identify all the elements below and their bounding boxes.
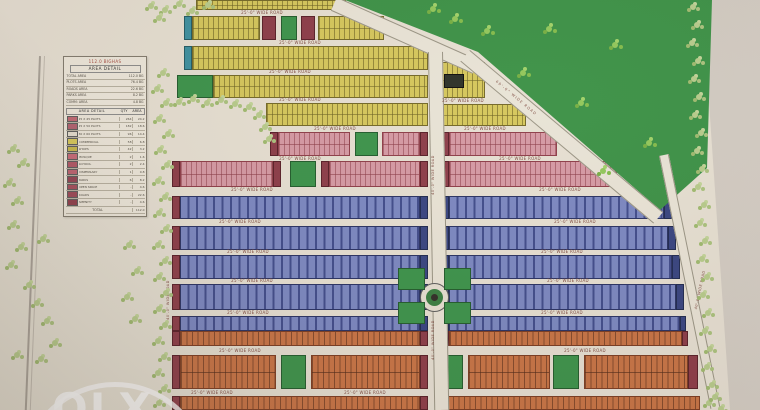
road-label: 25'-0" WIDE ROAD: [269, 70, 311, 74]
tree-cluster: [691, 76, 697, 82]
plot-row-segment: [301, 16, 315, 40]
plot-row-segment: [449, 316, 680, 331]
park-block: [398, 268, 425, 290]
legend-row: SHOPS423.2: [66, 146, 145, 154]
park-block: [398, 302, 425, 324]
tree-cluster: [134, 268, 140, 274]
road-label: 25'-0" WIDE ROAD: [227, 311, 269, 315]
tree-cluster: [6, 180, 12, 186]
plot-row-segment: [177, 75, 213, 98]
plot-row-segment: [420, 196, 428, 219]
road-label: 25'-0" WIDE ROAD: [442, 99, 484, 103]
tree-cluster: [704, 274, 710, 280]
road-label: 25'-0" WIDE ROAD: [464, 127, 506, 131]
plot-row-segment: [172, 355, 180, 389]
legend-row: AMENITY-4.6: [66, 199, 145, 207]
plot-row-segment: [192, 16, 260, 40]
legend-info-row: COMM: AREA4.8 BG: [66, 100, 145, 107]
plot-row-segment: [180, 255, 420, 279]
legend-swatch: [67, 131, 78, 138]
plot-row-segment: [420, 355, 428, 389]
tree-cluster: [266, 136, 272, 142]
plot-row-segment: [449, 226, 668, 250]
vertical-road-label: 40'-0" WIDE ROAD: [166, 280, 170, 320]
tree-cluster: [452, 16, 458, 22]
legend-row: MOSQUE21.6: [66, 153, 145, 161]
area-detail-legend: 112.0 BIGHAS AREA DETAIL TOTAL AREA112.0…: [63, 56, 147, 217]
tree-cluster: [161, 354, 167, 360]
tree-cluster: [246, 104, 252, 110]
plot-row-segment: [172, 196, 180, 219]
tree-cluster: [189, 8, 195, 14]
plot-row-segment: [172, 226, 180, 250]
tree-cluster: [709, 382, 715, 388]
plot-row-segment: [266, 103, 428, 126]
vertical-road-label: 40'-0" WIDE ROAD: [431, 320, 435, 360]
tree-cluster: [699, 166, 705, 172]
plot-row-segment: [441, 396, 700, 410]
tree-cluster: [702, 328, 708, 334]
legend-row: PARKS68.2: [66, 176, 145, 184]
tree-cluster: [694, 148, 700, 154]
road-label: 25'-0" WIDE ROAD: [547, 279, 589, 283]
tree-cluster: [162, 7, 168, 13]
plot-row-segment: [180, 355, 276, 389]
tree-cluster: [52, 340, 58, 346]
road-label: 25'-0" WIDE ROAD: [499, 157, 541, 161]
tree-cluster: [704, 364, 710, 370]
plot-row-segment: [672, 255, 680, 279]
legend-swatch: [67, 184, 78, 191]
tree-cluster: [163, 100, 169, 106]
tree-cluster: [8, 262, 14, 268]
tree-cluster: [162, 322, 168, 328]
tree-cluster: [689, 40, 695, 46]
tree-cluster: [262, 124, 268, 130]
plot-row-segment: [172, 161, 180, 187]
tree-cluster: [10, 222, 16, 228]
olx-watermark-text: OLX: [52, 384, 153, 410]
tree-cluster: [218, 97, 224, 103]
tree-cluster: [176, 1, 182, 7]
plot-row-segment: [468, 355, 550, 389]
tree-cluster: [205, 2, 211, 8]
tree-cluster: [165, 131, 171, 137]
legend-row: DISPENSARY10.8: [66, 169, 145, 177]
tree-cluster: [520, 70, 526, 76]
tree-cluster: [256, 112, 262, 118]
tree-cluster: [20, 160, 26, 166]
road-label: 25'-0" WIDE ROAD: [231, 188, 273, 192]
plot-row-segment: [441, 104, 526, 126]
tree-cluster: [706, 400, 712, 406]
tree-cluster: [155, 338, 161, 344]
plot-row-segment: [213, 75, 428, 98]
plot-row-segment: [180, 331, 420, 346]
legend-swatch: [67, 176, 78, 183]
legend-info-row: PLOTS AREA76.4 BG: [66, 80, 145, 87]
road-label: 25'-0" WIDE ROAD: [564, 349, 606, 353]
plot-row-segment: [184, 46, 192, 70]
plot-row-segment: [180, 161, 273, 187]
park-block: [444, 302, 471, 324]
legend-row: ROADS-22.6: [66, 191, 145, 199]
plot-row-segment: [172, 255, 180, 279]
plot-row-segment: [184, 16, 192, 40]
legend-swatch: [67, 116, 78, 123]
plot-row-segment: [172, 316, 180, 331]
tree-cluster: [698, 130, 704, 136]
road-label: 25'-0" WIDE ROAD: [279, 41, 321, 45]
tree-cluster: [699, 256, 705, 262]
tree-cluster: [712, 394, 718, 400]
legend-swatch: [67, 123, 78, 130]
plot-row-segment: [382, 132, 420, 156]
legend-color-rows: 25 X 45 PLOTS26424.225 X 50 PLOTS18218.6…: [66, 115, 145, 214]
tree-cluster: [10, 146, 16, 152]
tree-cluster: [38, 356, 44, 362]
tree-cluster: [696, 94, 702, 100]
tree-cluster: [156, 274, 162, 280]
tree-cluster: [156, 15, 162, 21]
road-label: 25'-0" WIDE ROAD: [314, 127, 356, 131]
vertical-road-label: 40'-0" WIDE ROAD: [431, 155, 435, 195]
tree-cluster: [701, 202, 707, 208]
tree-cluster: [695, 58, 701, 64]
tree-cluster: [162, 194, 168, 200]
plot-row-segment: [180, 196, 420, 219]
plot-row-segment: [553, 355, 579, 389]
tree-cluster: [484, 28, 490, 34]
plot-row-segment: [270, 132, 278, 156]
tree-cluster: [190, 96, 196, 102]
legend-row: TOTAL112.0: [66, 207, 145, 215]
legend-swatch: [67, 199, 78, 206]
legend-swatch: [67, 161, 78, 168]
legend-swatch: [67, 191, 78, 198]
plot-row-segment: [290, 161, 316, 187]
tree-cluster: [204, 100, 210, 106]
tree-cluster: [18, 244, 24, 250]
tree-cluster: [156, 116, 162, 122]
legend-info-row: PARKS AREA8.2 BG: [66, 93, 145, 100]
legend-row: 25 X 45 PLOTS26424.2: [66, 115, 145, 123]
tree-cluster: [705, 310, 711, 316]
tree-cluster: [34, 300, 40, 306]
tree-cluster: [232, 101, 238, 107]
tree-cluster: [155, 370, 161, 376]
plot-row-segment: [355, 132, 378, 156]
tree-cluster: [157, 147, 163, 153]
legend-info-row: ROADS AREA22.6 BG: [66, 87, 145, 94]
road-label: 25'-0" WIDE ROAD: [227, 250, 269, 254]
plot-row-segment: [172, 284, 180, 310]
plot-row-segment: [682, 331, 688, 346]
plot-row-segment: [584, 355, 688, 389]
plot-row-segment: [180, 226, 420, 250]
road-label: 25'-0" WIDE ROAD: [241, 11, 283, 15]
plot-row-segment: [420, 331, 428, 346]
legend-info-rows: TOTAL AREA112.0 BGPLOTS AREA76.4 BGROADS…: [66, 74, 145, 107]
plot-row-segment: [180, 396, 420, 410]
tree-cluster: [148, 3, 154, 9]
roundabout-center: [431, 294, 438, 301]
legend-row: SCHOOL22.4: [66, 161, 145, 169]
plot-row-segment: [278, 132, 350, 156]
photo-of-plot-map: 60'-0" WIDE ROAD 25'-0" WIDE ROAD25'-0" …: [0, 0, 760, 410]
road-label: 25'-0" WIDE ROAD: [231, 279, 273, 283]
tree-cluster: [718, 406, 724, 410]
tree-cluster: [707, 346, 713, 352]
tree-cluster: [700, 292, 706, 298]
legend-swatch: [67, 138, 78, 145]
road-label: 25'-0" WIDE ROAD: [539, 188, 581, 192]
tree-cluster: [692, 112, 698, 118]
tree-cluster: [578, 100, 584, 106]
road-label: 25'-0" WIDE ROAD: [279, 157, 321, 161]
legend-swatch: [67, 146, 78, 153]
plot-row-segment: [676, 284, 684, 310]
tree-cluster: [162, 258, 168, 264]
tree-cluster: [694, 22, 700, 28]
tree-cluster: [124, 294, 130, 300]
tree-cluster: [132, 316, 138, 322]
plot-row-segment: [449, 132, 557, 156]
plot-row-segment: [273, 161, 281, 187]
tree-cluster: [646, 140, 652, 146]
road-label: 25'-0" WIDE ROAD: [279, 98, 321, 102]
tree-cluster: [612, 42, 618, 48]
legend-row: COMMERCIAL586.8: [66, 138, 145, 146]
plot-row-segment: [281, 16, 297, 40]
plot-row-segment: [192, 46, 428, 70]
plot-row-segment: [196, 0, 346, 10]
tree-cluster: [690, 4, 696, 10]
plot-row-segment: [688, 355, 698, 389]
tree-cluster: [44, 318, 50, 324]
legend-swatch: [67, 153, 78, 160]
plot-row-segment: [449, 331, 682, 346]
plot-row-segment: [420, 226, 428, 250]
legend-table-header: AREA DETAILQTYAREA: [66, 108, 145, 116]
legend-row: 30 X 60 PLOTS9614.4: [66, 131, 145, 139]
tree-cluster: [155, 178, 161, 184]
tree-cluster: [154, 86, 160, 92]
plot-row-segment: [420, 132, 428, 156]
tree-cluster: [702, 238, 708, 244]
tree-cluster: [163, 226, 169, 232]
plot-row-segment: [180, 284, 420, 310]
plot-row-segment: [321, 161, 329, 187]
tree-cluster: [161, 386, 167, 392]
plot-row-segment: [420, 161, 428, 187]
road-label: 25'-0" WIDE ROAD: [219, 220, 261, 224]
tree-cluster: [14, 352, 20, 358]
road-label: 25'-0" WIDE ROAD: [541, 311, 583, 315]
road-label: 25'-0" WIDE ROAD: [554, 220, 596, 224]
park-block: [444, 268, 471, 290]
legend-row: 25 X 50 PLOTS18218.6: [66, 123, 145, 131]
plot-row-segment: [281, 355, 306, 389]
legend-info-row: TOTAL AREA112.0 BG: [66, 74, 145, 81]
tree-cluster: [26, 282, 32, 288]
plot-row-segment: [180, 316, 420, 331]
tree-cluster: [156, 306, 162, 312]
tree-cluster: [156, 210, 162, 216]
mosque-label-block: [444, 74, 464, 88]
plot-row-segment: [329, 161, 420, 187]
plot-row-segment: [449, 284, 676, 310]
tree-cluster: [695, 184, 701, 190]
road-label: 25'-0" WIDE ROAD: [541, 250, 583, 254]
tree-cluster: [14, 198, 20, 204]
legend-header: AREA DETAIL: [70, 65, 141, 73]
tree-cluster: [160, 70, 166, 76]
road-label: 25'-0" WIDE ROAD: [219, 349, 261, 353]
plot-row-segment: [449, 255, 672, 279]
tree-cluster: [164, 162, 170, 168]
tree-cluster: [126, 242, 132, 248]
tree-cluster: [163, 290, 169, 296]
plot-row-segment: [311, 355, 420, 389]
legend-swatch: [67, 208, 76, 213]
legend-row: OPEN SPACE-4.6: [66, 184, 145, 192]
tree-cluster: [155, 242, 161, 248]
plot-row-segment: [680, 316, 686, 331]
tree-cluster: [40, 236, 46, 242]
tree-cluster: [546, 26, 552, 32]
legend-swatch: [67, 169, 78, 176]
tree-cluster: [430, 6, 436, 12]
road-label: 25'-0" WIDE ROAD: [344, 391, 386, 395]
tree-cluster: [697, 220, 703, 226]
road-label: 25'-0" WIDE ROAD: [191, 391, 233, 395]
plot-row-segment: [420, 396, 428, 410]
legend-title: 112.0 BIGHAS: [66, 59, 145, 64]
plot-row-segment: [172, 331, 180, 346]
tree-cluster: [600, 168, 606, 174]
plot-row-segment: [262, 16, 276, 40]
tree-cluster: [176, 99, 182, 105]
